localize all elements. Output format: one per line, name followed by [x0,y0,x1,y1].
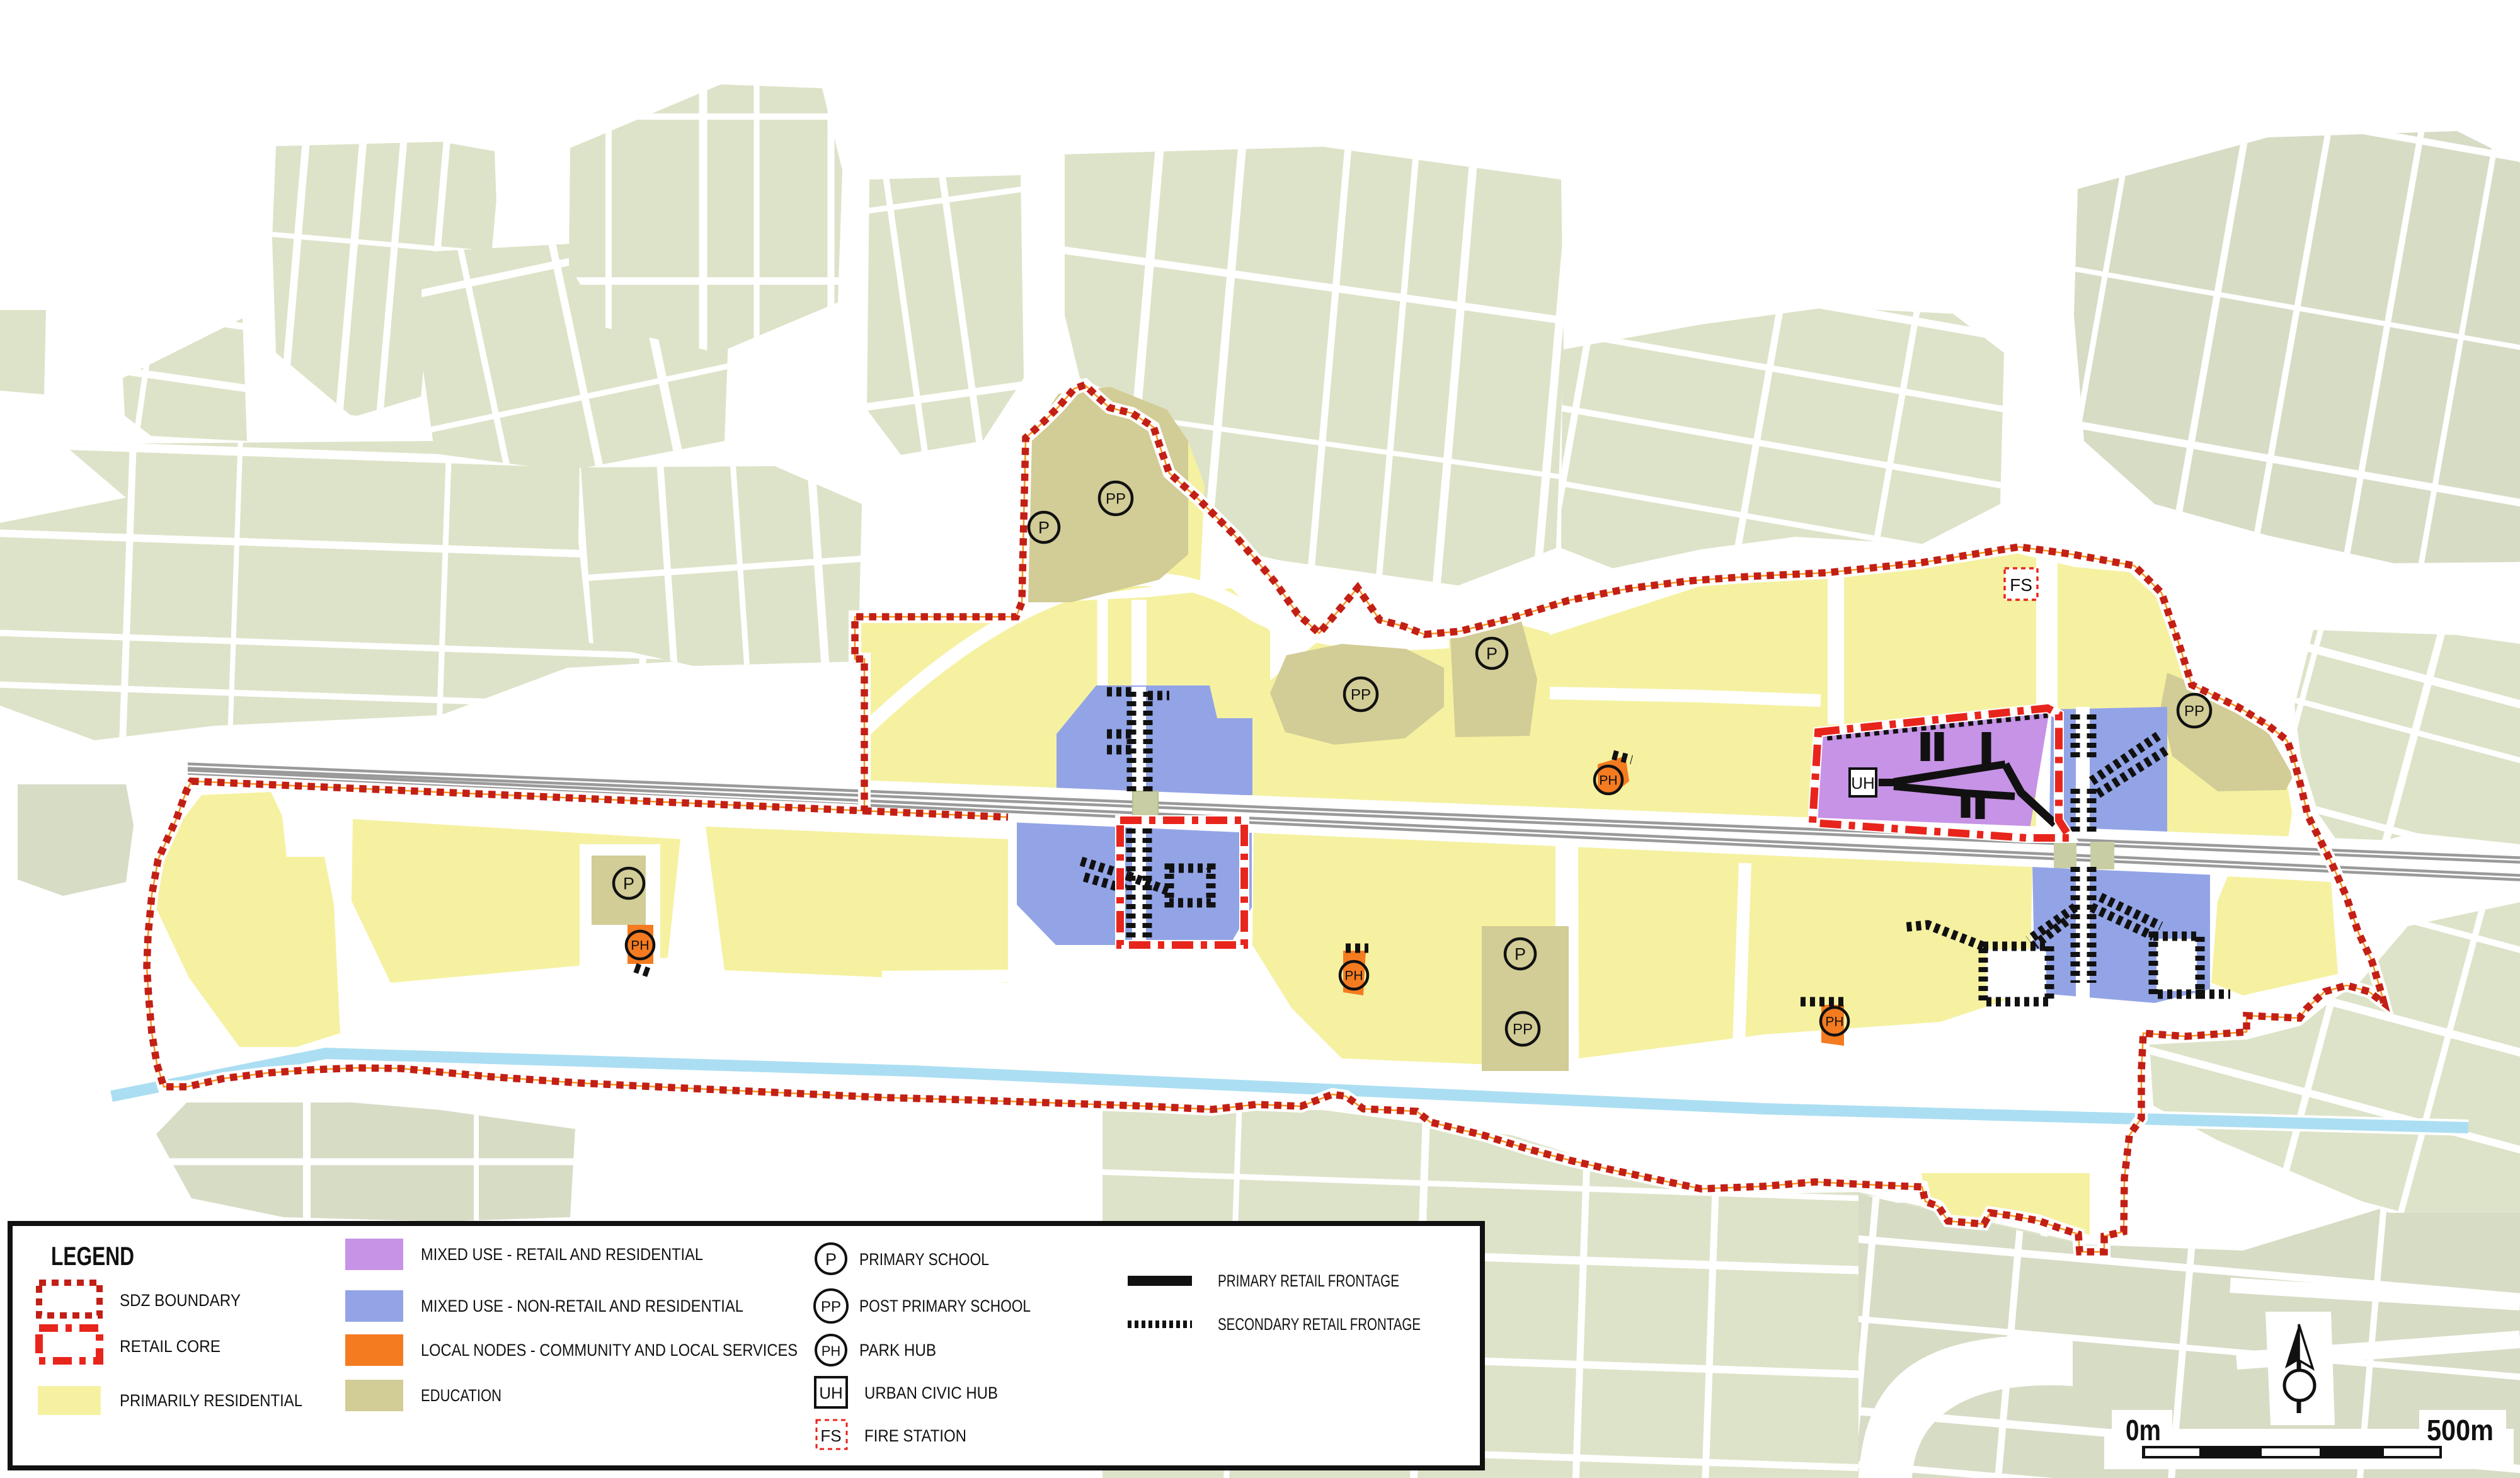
svg-text:0m: 0m [2126,1414,2161,1446]
svg-text:RETAIL CORE: RETAIL CORE [120,1337,220,1356]
svg-text:PH: PH [822,1343,841,1359]
svg-text:PARK HUB: PARK HUB [859,1341,936,1360]
svg-text:PP: PP [1351,687,1371,704]
svg-text:PRIMARILY RESIDENTIAL: PRIMARILY RESIDENTIAL [120,1391,302,1410]
svg-text:P: P [1038,518,1050,537]
svg-text:URBAN CIVIC HUB: URBAN CIVIC HUB [864,1383,998,1402]
svg-text:UH: UH [1851,774,1875,793]
svg-text:FIRE STATION: FIRE STATION [864,1426,966,1445]
svg-text:MIXED USE - NON-RETAIL AND RES: MIXED USE - NON-RETAIL AND RESIDENTIAL [421,1297,743,1315]
svg-text:PP: PP [1513,1021,1533,1038]
svg-text:500m: 500m [2427,1414,2494,1446]
svg-text:PH: PH [1344,969,1363,983]
svg-text:PP: PP [1106,491,1126,508]
svg-text:PH: PH [1825,1015,1843,1029]
svg-text:PP: PP [821,1298,841,1315]
svg-text:P: P [1515,945,1526,964]
svg-text:MIXED USE - RETAIL AND RESIDEN: MIXED USE - RETAIL AND RESIDENTIAL [421,1245,703,1264]
svg-text:PP: PP [2184,703,2204,720]
svg-text:PH: PH [1599,774,1617,788]
svg-text:SECONDARY RETAIL FRONTAGE: SECONDARY RETAIL FRONTAGE [1218,1315,1421,1334]
svg-text:P: P [825,1250,837,1269]
svg-text:EDUCATION: EDUCATION [421,1386,501,1405]
svg-text:SDZ BOUNDARY: SDZ BOUNDARY [120,1291,241,1310]
svg-text:UH: UH [819,1383,843,1402]
svg-text:PRIMARY RETAIL FRONTAGE: PRIMARY RETAIL FRONTAGE [1218,1271,1399,1290]
svg-text:LEGEND: LEGEND [51,1241,134,1271]
svg-text:P: P [623,874,634,893]
svg-text:POST PRIMARY SCHOOL: POST PRIMARY SCHOOL [859,1297,1031,1315]
svg-text:PRIMARY SCHOOL: PRIMARY SCHOOL [859,1250,989,1269]
svg-text:P: P [1486,644,1498,663]
svg-text:LOCAL NODES - COMMUNITY AND LO: LOCAL NODES - COMMUNITY AND LOCAL SERVIC… [421,1341,798,1360]
svg-text:PH: PH [631,939,649,953]
svg-text:FS: FS [820,1426,841,1445]
svg-text:FS: FS [2010,575,2032,595]
